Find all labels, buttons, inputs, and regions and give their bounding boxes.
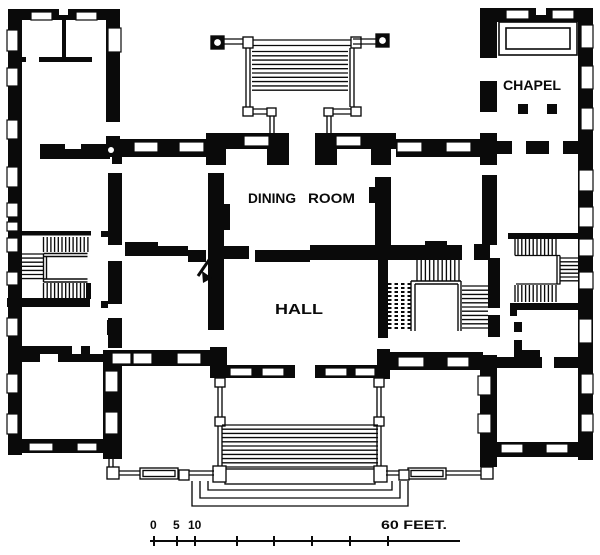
svg-text:DINING: DINING <box>248 190 296 206</box>
svg-text:10: 10 <box>188 518 202 532</box>
svg-text:0: 0 <box>150 518 157 532</box>
svg-text:ROOM: ROOM <box>308 190 355 206</box>
svg-text:60 FEET.: 60 FEET. <box>381 518 447 532</box>
svg-text:5: 5 <box>173 518 180 532</box>
svg-text:HALL: HALL <box>275 301 323 318</box>
svg-text:CHAPEL: CHAPEL <box>503 77 561 93</box>
